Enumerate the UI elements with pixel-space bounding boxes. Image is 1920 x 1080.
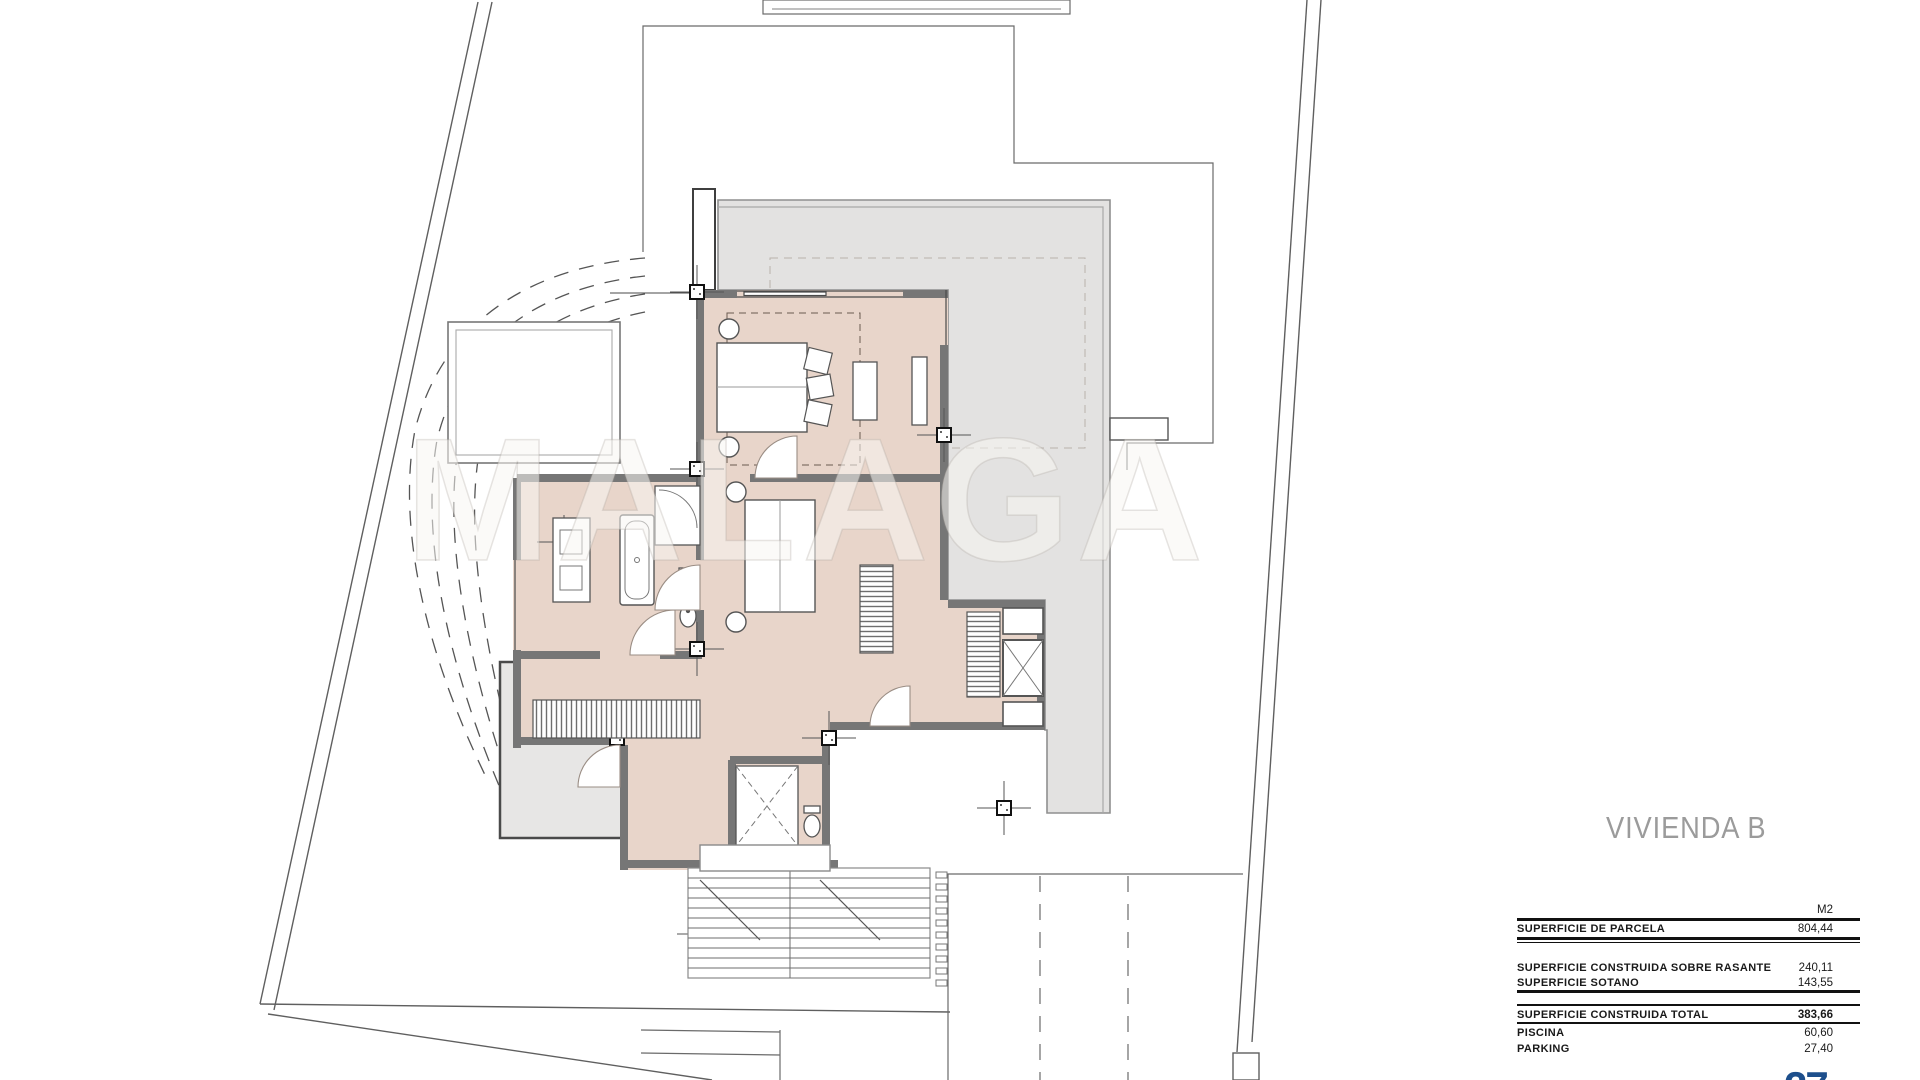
table-row: SUPERFICIE CONSTRUIDA SOBRE RASANTE 240,…: [1517, 961, 1833, 975]
table-rule: [1517, 1022, 1860, 1025]
row-value: 27,40: [1804, 1043, 1833, 1055]
nightstand-icon: [719, 319, 739, 339]
boundary-right-inner: [1252, 0, 1321, 1042]
watermark-text: MALAGA: [405, 403, 1209, 598]
table-row: SUPERFICIE DE PARCELA 804,44: [1517, 922, 1833, 936]
table-row: PISCINA 60,60: [1517, 1026, 1833, 1040]
stair-landing: [700, 845, 830, 871]
chimney: [693, 189, 715, 290]
table-rule: [1517, 942, 1860, 943]
column-marker: [977, 781, 1031, 835]
boundary-bottom-fence: [260, 1004, 950, 1012]
entry-walk-top: [641, 1030, 780, 1032]
row-label: PARKING: [1517, 1043, 1570, 1055]
row-label: SUPERFICIE DE PARCELA: [1517, 923, 1665, 935]
unit-header: M2: [1517, 904, 1833, 916]
row-label: SUPERFICIE CONSTRUIDA TOTAL: [1517, 1009, 1709, 1021]
row-value: 143,55: [1798, 977, 1833, 989]
row-label: SUPERFICIE SOTANO: [1517, 977, 1639, 989]
table-rule: [1517, 990, 1860, 993]
table-row: SUPERFICIE CONSTRUIDA TOTAL 383,66: [1517, 1008, 1833, 1022]
row-value: 804,44: [1798, 923, 1833, 935]
boundary-right-outer: [1237, 0, 1307, 1052]
table-row: PARKING 27,40: [1517, 1042, 1833, 1056]
row-value: 383,66: [1798, 1009, 1833, 1021]
row-value: 240,11: [1799, 962, 1833, 974]
entry-walk-bottom: [641, 1053, 780, 1055]
row-value: 60,60: [1804, 1027, 1833, 1039]
table-rule: [1517, 1004, 1860, 1006]
wardrobe-icon: [967, 612, 1000, 697]
plan-title: VIVIENDA B: [1606, 810, 1766, 846]
shaft-closet-top: [1003, 608, 1043, 634]
stair-rungs: [936, 872, 947, 986]
parking-area-outline: [948, 874, 1243, 1080]
nightstand-icon: [726, 612, 746, 632]
neighbor-house-top: [763, 0, 1070, 14]
row-label: PISCINA: [1517, 1027, 1564, 1039]
table-rule: [1517, 937, 1860, 940]
boundary-road-edge: [268, 1014, 712, 1080]
logo-number: 27: [1784, 1066, 1844, 1080]
gate-pillar: [1233, 1053, 1259, 1080]
sliding-leaf-1: [744, 292, 826, 296]
row-label: SUPERFICIE CONSTRUIDA SOBRE RASANTE: [1517, 962, 1771, 974]
brand-logo: 27: [1784, 1066, 1844, 1080]
elevator: [1003, 608, 1043, 726]
floor-plan-page: { "title": { "text": "VIVIENDA B", "colo…: [0, 0, 1920, 1080]
shaft-closet-bottom: [1003, 702, 1043, 726]
stair-block: [688, 868, 930, 978]
table-rule: [1517, 918, 1860, 921]
staircase: [688, 845, 947, 986]
hall-wardrobe-icon: [533, 700, 700, 738]
toilet-icon: [804, 806, 820, 837]
table-row: SUPERFICIE SOTANO 143,55: [1517, 976, 1833, 990]
